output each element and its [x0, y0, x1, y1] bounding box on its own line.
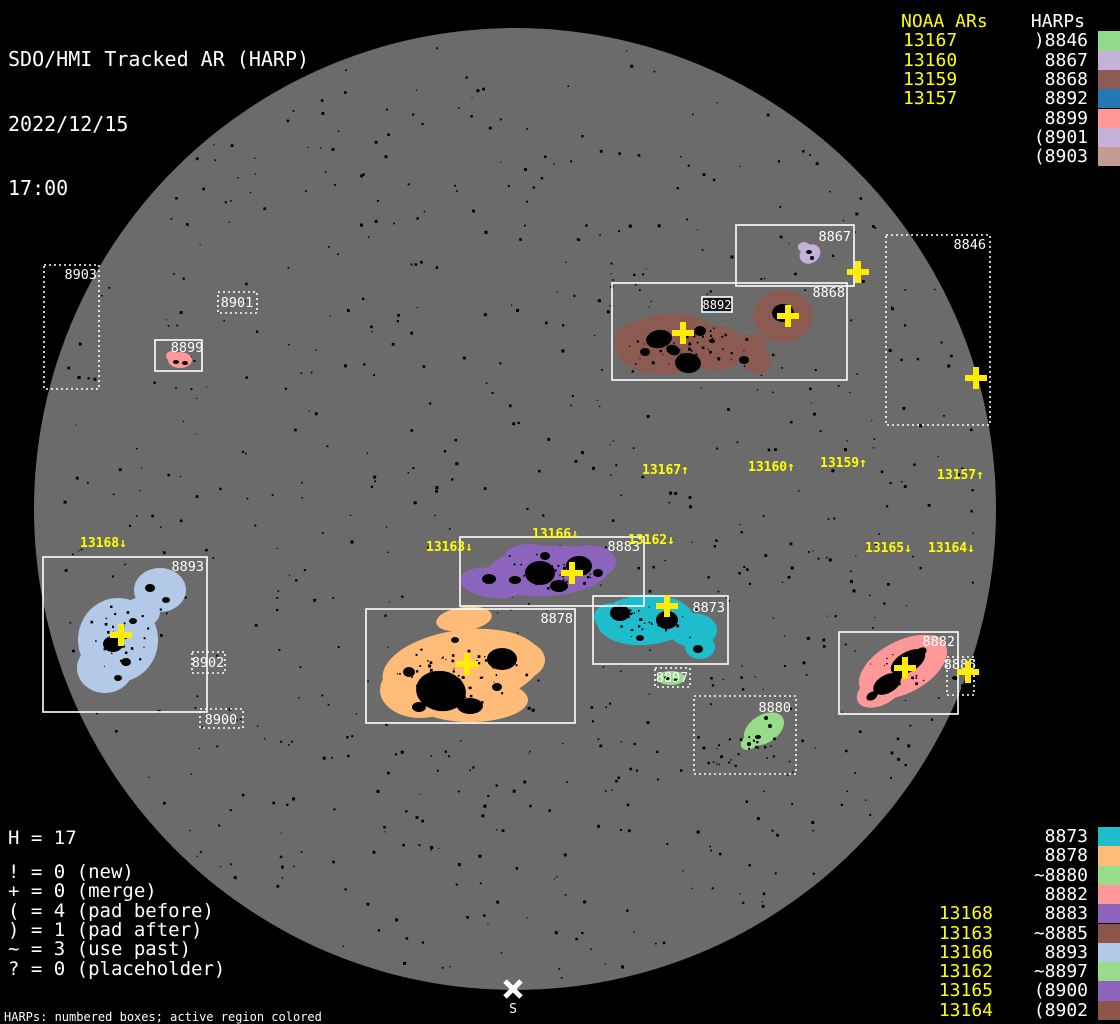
sunspot	[694, 326, 706, 336]
harp-box-label-8903: 8903	[64, 267, 97, 283]
noaa-ar-label-13165: 13165↓	[865, 541, 912, 556]
harp-color-swatch	[1098, 924, 1120, 943]
harp-color-swatch	[1098, 31, 1120, 50]
harp-number: 8878	[963, 846, 1088, 865]
harp-color-swatch	[1098, 109, 1120, 128]
sunspot	[636, 635, 644, 641]
harp-color-swatch	[1098, 866, 1120, 885]
sunspot	[121, 658, 131, 666]
noaa-ar-label-13157: 13157↑	[937, 468, 984, 483]
harp-box-label-8902: 8902	[192, 655, 225, 671]
noaa-ar-label-13167: 13167↑	[642, 463, 689, 478]
sunspot	[961, 684, 965, 688]
sunspot	[764, 716, 768, 720]
harp-number: 8868	[963, 70, 1088, 89]
harp-number: 8883	[963, 904, 1088, 923]
sunspot	[952, 676, 958, 680]
harp-color-swatch	[1098, 1001, 1120, 1020]
harp-color-swatch	[1098, 943, 1120, 962]
sunspot	[129, 618, 137, 624]
sunspot	[114, 675, 122, 681]
legend-row-harp-8880: ~8880	[0, 866, 1120, 885]
sunspot	[550, 580, 568, 592]
sunspot	[457, 698, 483, 714]
sunspot	[403, 667, 415, 677]
noaa-ar-label-13159: 13159↑	[820, 456, 867, 471]
harp-box-label-8868: 8868	[812, 285, 845, 301]
harp-number: ~8897	[963, 962, 1088, 981]
harp-box-label-8882: 8882	[922, 634, 955, 650]
noaa-ar-label-13163: 13163↓	[426, 540, 473, 555]
harp-number: 8899	[963, 109, 1088, 128]
legend-row-harp-8878: 8878	[0, 846, 1120, 865]
harp-color-swatch	[1098, 51, 1120, 70]
harp-number: (8901	[963, 128, 1088, 147]
harp-tracking-plot: 8867886888468903890188998883887388788893…	[0, 0, 1120, 1024]
legend-row-harp-8873: 8873	[0, 827, 1120, 846]
sunspot	[806, 250, 812, 254]
footnotes: HARPs: numbered boxes; active region col…	[4, 986, 423, 1024]
harp-color-swatch	[1098, 846, 1120, 865]
harp-box-label-8897: 8897	[656, 670, 689, 686]
sunspot	[593, 569, 603, 577]
sunspot	[509, 576, 521, 584]
sunspot	[810, 256, 814, 260]
harp-box-label-8867: 8867	[818, 229, 851, 245]
harp-number: (8903	[963, 147, 1088, 166]
harp-color-swatch	[1098, 128, 1120, 147]
symbol-legend-line: ? = 0 (placeholder)	[8, 960, 225, 979]
harp-color-swatch	[1098, 885, 1120, 904]
symbol-legend-line: ~ = 3 (use past)	[8, 940, 191, 959]
noaa-ar-label-13160: 13160↑	[748, 460, 795, 475]
sunspot	[739, 356, 749, 364]
sunspot	[768, 724, 772, 728]
plot-date: 2022/12/15	[8, 114, 309, 136]
harp-box-label-8899: 8899	[171, 340, 204, 356]
harp-box-label-8893: 8893	[171, 559, 204, 575]
sunspot	[610, 605, 630, 621]
sunspot	[755, 735, 761, 739]
noaa-ar-label-13164: 13164↓	[928, 541, 975, 556]
harp-number: ~8885	[963, 924, 1088, 943]
harp-number: ~8880	[963, 866, 1088, 885]
sunspot	[747, 742, 751, 746]
harp-color-swatch	[1098, 827, 1120, 846]
harp-number: 8882	[963, 885, 1088, 904]
harp-color-swatch	[1098, 904, 1120, 923]
harp-box-label-8846: 8846	[953, 237, 986, 253]
harp-box-label-8873: 8873	[692, 600, 725, 616]
sunspot	[182, 361, 188, 365]
plot-title: SDO/HMI Tracked AR (HARP)	[8, 49, 309, 71]
harp-number: 8873	[963, 827, 1088, 846]
plot-header: SDO/HMI Tracked AR (HARP) 2022/12/15 17:…	[8, 6, 309, 243]
harp-color-swatch	[1098, 962, 1120, 981]
symbol-legend-line: ( = 4 (pad before)	[8, 902, 214, 921]
sunspot	[162, 597, 170, 603]
harp-color-swatch	[1098, 981, 1120, 1000]
harp-box-label-8878: 8878	[540, 611, 573, 627]
footnote-harps: HARPs: numbered boxes; active region col…	[4, 1011, 423, 1024]
sunspot	[412, 702, 426, 712]
harps-header: HARPs	[963, 12, 1085, 31]
harp-number: (8902	[963, 1001, 1088, 1020]
noaa-ar-label-13162: 13162↓	[628, 533, 675, 548]
harp-color-swatch	[1098, 147, 1120, 166]
harp-number: 8867	[963, 51, 1088, 70]
harp-box-label-8892: 8892	[703, 298, 732, 312]
harp-number: 8893	[963, 943, 1088, 962]
sunspot	[487, 648, 517, 670]
harp-count: H = 17	[8, 829, 77, 848]
sunspot	[540, 552, 550, 560]
harp-number: )8846	[963, 31, 1088, 50]
harp-box-label-8900: 8900	[205, 712, 238, 728]
sunspot	[451, 637, 459, 643]
noaa-ar-label-13166: 13166↓	[532, 527, 579, 542]
harp-box-label-8901: 8901	[221, 295, 254, 311]
sunspot	[482, 574, 496, 584]
sunspot	[693, 645, 703, 653]
harp-color-swatch	[1098, 70, 1120, 89]
sunspot	[145, 584, 155, 592]
sunspot	[525, 561, 555, 585]
symbol-legend-line: + = 0 (merge)	[8, 882, 157, 901]
sunspot	[173, 360, 179, 364]
harp-color-swatch	[1098, 89, 1120, 108]
sunspot	[640, 348, 650, 356]
harp-box-label-8880: 8880	[758, 700, 791, 716]
noaa-ar-label-13168: 13168↓	[80, 536, 127, 551]
sunspot	[492, 683, 502, 691]
plot-time: 17:00	[8, 178, 309, 200]
harp-number: (8900	[963, 981, 1088, 1000]
sunspot	[709, 339, 715, 343]
harp-number: 8892	[963, 89, 1088, 108]
